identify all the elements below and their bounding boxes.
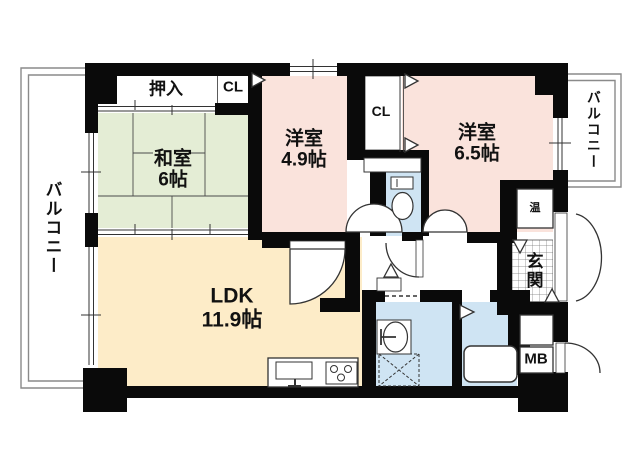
- step-marker-up: [384, 264, 398, 277]
- shoe-box: [520, 315, 553, 345]
- entrance-label: 玄関: [523, 252, 542, 290]
- balcony-right-label: バルコニー: [585, 90, 601, 170]
- room-ldk-label: LDK 11.9帖: [202, 284, 263, 331]
- bathtub: [464, 346, 517, 382]
- entrance-door-arc: [576, 214, 601, 301]
- oshiire-label: 押入: [149, 79, 183, 98]
- room-western-65-label: 洋室 6.5帖: [454, 123, 499, 166]
- room-western-49-label: 洋室 4.9帖: [281, 129, 326, 172]
- water-heater-label: 温: [530, 202, 541, 214]
- mb-door-arc: [565, 343, 600, 373]
- floor-plan: 押入 CL CL 和室 6帖 洋室 4.9帖 洋室 6.5帖 LDK 11.9帖…: [0, 0, 639, 469]
- cl-top-label: CL: [223, 80, 243, 97]
- cl-mid-label: CL: [372, 104, 391, 120]
- balcony-left-label: バルコニー: [42, 181, 61, 276]
- wash-basin: [377, 320, 411, 354]
- meter-box-label: MB: [524, 352, 547, 369]
- toilet-fixture: [391, 177, 413, 220]
- floor-plan-drawing: [0, 0, 639, 469]
- room-washitsu-label: 和室 6帖: [154, 149, 192, 192]
- kitchen-counter: [268, 358, 358, 387]
- kitchen-sink: [276, 362, 312, 379]
